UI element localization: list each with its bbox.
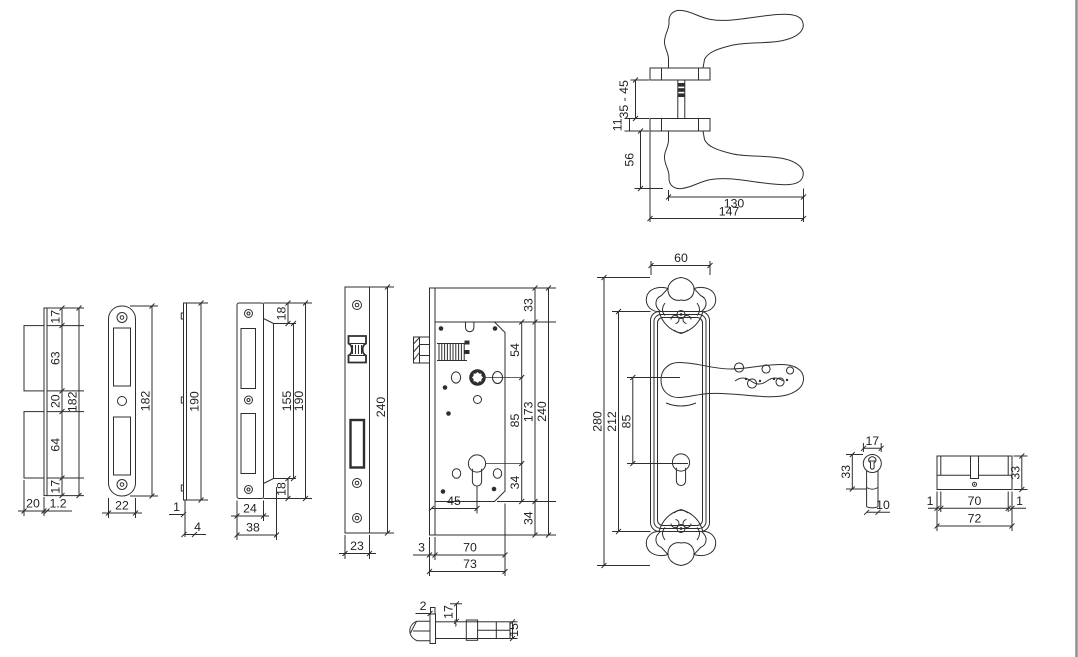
cylinder-profile <box>863 455 881 473</box>
latch-spring <box>437 341 470 361</box>
plate-outline <box>109 306 136 496</box>
dim-label: 20 <box>49 394 63 408</box>
dim-label: 190 <box>292 391 306 412</box>
latch-bolt-front <box>349 336 367 363</box>
dim-label: 70 <box>463 541 477 555</box>
dim-label: 17 <box>865 434 879 448</box>
lock-faceplate <box>430 288 436 535</box>
lever-filigree <box>735 363 794 388</box>
dim-label: 33 <box>1008 466 1022 480</box>
dim-label: 17 <box>49 480 63 494</box>
drawing-page: 35 - 45 11 56 130 147 17 63 20 64 17 182 <box>0 0 1078 657</box>
lower-box <box>24 412 44 478</box>
plate-molding-mid <box>654 315 706 529</box>
upper-rose <box>650 68 710 80</box>
dim-label: 18 <box>275 307 289 321</box>
upper-box <box>24 326 44 391</box>
dim-label: 2 <box>420 599 427 613</box>
dim-label: 4 <box>194 520 201 534</box>
plate-molding-inner <box>658 318 703 526</box>
dim-label: 182 <box>66 391 80 412</box>
dim-label: 240 <box>535 401 549 422</box>
plate-molding-outer <box>651 312 710 532</box>
box-strike-side-view: 17 63 20 64 17 182 20 1.2 <box>18 306 84 517</box>
dim-label: 17 <box>442 605 456 619</box>
cylinder-end-view: 17 33 10 <box>839 434 890 515</box>
dim-label: 1 <box>927 494 934 508</box>
dim-label: 24 <box>243 502 257 516</box>
screw-hole <box>353 479 362 488</box>
dim-label: 11 <box>611 118 625 131</box>
dim-label: 190 <box>188 391 202 412</box>
dim-label: 34 <box>522 511 536 525</box>
dim-label: 240 <box>374 397 388 418</box>
handle-dimensions <box>625 78 807 223</box>
upper-lever <box>664 10 803 68</box>
keyway <box>869 457 876 469</box>
strike-plate-profile-view: 190 1 4 <box>169 301 208 538</box>
deadbolt-slot <box>351 420 365 468</box>
dim-label: 63 <box>49 351 63 365</box>
bottom-ornament <box>646 510 715 566</box>
cylinder-side-view: 33 1 70 1 72 <box>927 454 1028 532</box>
dim-label: 64 <box>49 438 63 452</box>
dim-label: 1 <box>173 500 180 514</box>
dim-label: 70 <box>968 494 982 508</box>
handle-pair-side-view: 35 - 45 11 56 130 147 <box>611 10 807 222</box>
strike-plate-front-view: 182 22 <box>102 304 158 519</box>
cylinder-hole <box>468 455 485 472</box>
dim-label: 147 <box>719 205 740 219</box>
case-outline <box>435 322 505 502</box>
dim-label: 212 <box>605 411 619 432</box>
dim-label: 45 <box>447 494 461 508</box>
screw-hole <box>117 480 127 490</box>
screw-hole <box>353 514 362 523</box>
lock-case-view: 54 85 34 33 173 34 240 45 3 70 73 <box>413 286 556 577</box>
dim-label: 85 <box>620 415 634 429</box>
dim-label: 23 <box>350 539 364 553</box>
screw-hole <box>245 396 253 404</box>
dim-label: 33 <box>839 465 853 479</box>
dim-label: 54 <box>508 343 522 357</box>
dim-label: 35 - 45 <box>617 80 631 118</box>
top-ornament <box>646 278 715 334</box>
dim-label: 20 <box>26 497 40 511</box>
dim-label: 38 <box>246 521 260 535</box>
dim-label: 3 <box>418 541 425 555</box>
technical-drawing: 35 - 45 11 56 130 147 17 63 20 64 17 182 <box>0 0 1078 657</box>
dim-label: 1 <box>1016 494 1023 508</box>
screw-hole <box>245 310 253 318</box>
backplate-with-lever-view: 60 280 212 85 <box>591 251 804 568</box>
faceplate-section <box>430 614 436 644</box>
lower-rose <box>650 119 710 132</box>
fixing-hole <box>452 469 460 479</box>
dim-label: 73 <box>463 557 477 571</box>
dim-label: 18 <box>275 482 289 496</box>
dim-label: 56 <box>623 153 637 167</box>
dim-label: 182 <box>139 391 153 412</box>
bolt-slot <box>241 414 256 474</box>
dim-label: 72 <box>968 512 982 526</box>
center-hole <box>118 397 127 406</box>
lower-lever <box>664 131 803 189</box>
dim-label: 34 <box>508 476 522 490</box>
faceplate-front-view: 240 23 <box>339 285 394 560</box>
screw-hole <box>353 301 362 310</box>
latch-bolt-side-view: 2 17 15 <box>410 599 521 644</box>
dim-label: 280 <box>591 411 605 432</box>
dim-label: 1.2 <box>49 497 66 511</box>
fixing-hole <box>451 372 460 383</box>
bolt-slot <box>114 417 131 475</box>
dim-label: 85 <box>508 414 522 428</box>
latch-slot <box>241 329 256 389</box>
dim-label: 173 <box>522 401 536 422</box>
lipped-strike-front-view: 18 155 190 18 24 38 <box>231 301 312 541</box>
screw-hole <box>245 486 253 494</box>
dim-label: 17 <box>49 310 63 324</box>
top-notch <box>466 322 474 332</box>
fixing-hole <box>493 469 501 479</box>
plate-cylinder-hole <box>672 454 689 471</box>
screw-hole <box>117 313 127 323</box>
latch-slot <box>114 328 131 386</box>
dim-label: 33 <box>522 298 536 312</box>
dim-label: 15 <box>507 623 521 637</box>
faceplate-outline <box>345 287 370 533</box>
dim-label: 60 <box>674 251 688 265</box>
dim-label: 10 <box>876 498 890 512</box>
dim-label: 22 <box>115 499 129 513</box>
